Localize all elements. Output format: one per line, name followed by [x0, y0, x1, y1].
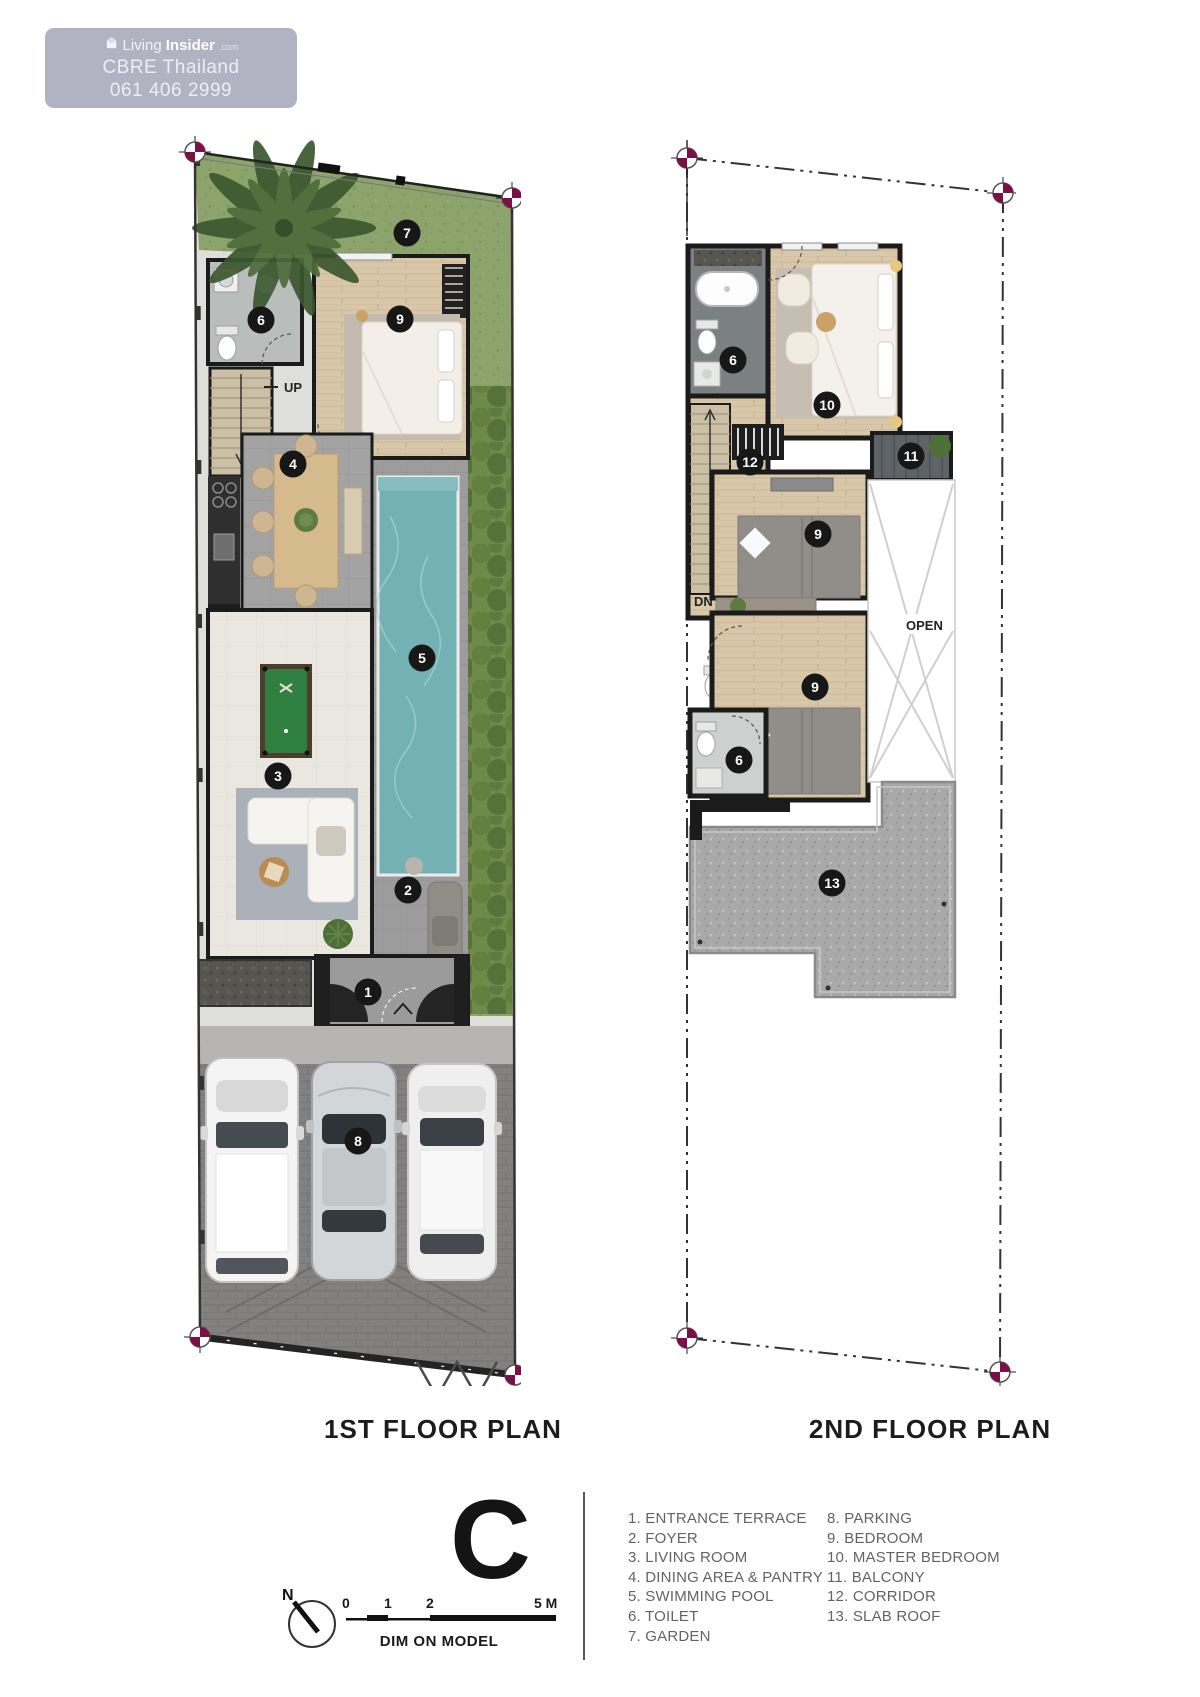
badge-bedroom-f1: 9: [387, 306, 414, 333]
scale-segment-thick: [367, 1615, 388, 1621]
car-hood: [418, 1086, 486, 1112]
entrance-wall: [316, 956, 330, 1026]
dining-area: [242, 434, 372, 610]
pool-table: [260, 664, 312, 758]
svg-text:4: 4: [289, 456, 297, 472]
kitchen-sink: [214, 534, 234, 560]
pillow: [878, 274, 893, 330]
watermark-company: CBRE Thailand: [102, 56, 239, 79]
parapet-wall: [690, 800, 702, 840]
legend-item: 5. SWIMMING POOL: [628, 1587, 823, 1607]
scale-segment-thin: [346, 1618, 367, 1621]
badge-bath-low: 6: [726, 747, 753, 774]
entrance-terrace: [316, 956, 468, 1026]
legend-item: 1. ENTRANCE TERRACE: [628, 1509, 823, 1529]
open-label: OPEN: [906, 618, 943, 633]
toilet-bowl: [697, 732, 715, 756]
pillow: [438, 330, 454, 372]
dining-chair: [295, 585, 317, 607]
badge-bath-top: 6: [720, 347, 747, 374]
svg-text:9: 9: [811, 679, 819, 695]
car-rear-window: [420, 1234, 484, 1254]
car-mirror: [296, 1126, 304, 1140]
car-mirror: [394, 1120, 402, 1133]
legend-item: 13. SLAB ROOF: [827, 1607, 1000, 1627]
window: [838, 243, 878, 250]
first-floor-plan-drawing: UP: [166, 136, 521, 1386]
badge-master-bedroom: 10: [814, 392, 841, 419]
legend-item: 4. DINING AREA & PANTRY: [628, 1568, 823, 1588]
table-plant-inner: [299, 513, 313, 527]
legend-column-1: 1. ENTRANCE TERRACE 2. FOYER 3. LIVING R…: [628, 1509, 823, 1646]
car-windshield: [216, 1122, 288, 1148]
tub-drain: [724, 286, 730, 292]
living-insider-logo-icon: [104, 35, 119, 50]
toilet-tank: [696, 320, 718, 329]
badge-living: 3: [265, 763, 292, 790]
toilet-bowl: [698, 330, 716, 354]
roof-drain: [942, 902, 947, 907]
legend-item: 3. LIVING ROOM: [628, 1548, 823, 1568]
svg-text:6: 6: [257, 312, 265, 328]
car-rear-window: [322, 1210, 386, 1232]
side-pouf: [405, 857, 423, 875]
sofa-cushion: [316, 826, 346, 856]
svg-text:6: 6: [735, 752, 743, 768]
svg-text:9: 9: [396, 311, 404, 327]
svg-text:7: 7: [403, 225, 411, 241]
svg-text:2: 2: [404, 882, 412, 898]
pouf-table: [816, 312, 836, 332]
watermark-logo-row: LivingInsider.com: [104, 35, 239, 56]
pillow: [438, 380, 454, 422]
fence-post: [395, 175, 405, 185]
svg-text:1: 1: [364, 984, 372, 1000]
lounge-chair-seat: [432, 916, 458, 946]
armchair: [786, 332, 818, 364]
compass-needle: [294, 1602, 318, 1632]
svg-text:8: 8: [354, 1133, 362, 1149]
dining-chair: [252, 555, 274, 577]
roof-drain: [698, 940, 703, 945]
svg-text:6: 6: [729, 352, 737, 368]
svg-text:9: 9: [814, 526, 822, 542]
survey-marker: [671, 1322, 703, 1354]
car-mirror: [306, 1120, 314, 1133]
car-mirror: [200, 1126, 208, 1140]
scale-segment-thin: [388, 1618, 430, 1621]
scale-tick-2: 2: [426, 1595, 434, 1611]
badge-pool: 5: [409, 645, 436, 672]
badge-garden: 7: [394, 220, 421, 247]
legend-item: 11. BALCONY: [827, 1568, 1000, 1588]
toilet-tank: [216, 326, 238, 335]
nightstand: [356, 310, 368, 322]
scale-tick-5m: 5 M: [534, 1595, 557, 1611]
bedroom-front: [712, 472, 868, 598]
legend-item: 10. MASTER BEDROOM: [827, 1548, 1000, 1568]
car-rear-window: [216, 1258, 288, 1274]
legend-column-2: 8. PARKING 9. BEDROOM 10. MASTER BEDROOM…: [827, 1509, 1000, 1627]
roof-drain: [826, 986, 831, 991]
svg-text:10: 10: [819, 397, 835, 413]
north-label: N: [282, 1587, 294, 1604]
second-floor-plan-drawing: DN: [606, 136, 1016, 1386]
second-floor-title: 2ND FLOOR PLAN: [780, 1414, 1080, 1445]
car-suv: [200, 1058, 304, 1282]
svg-text:13: 13: [824, 875, 840, 891]
survey-marker: [671, 142, 703, 174]
badge-dining: 4: [280, 451, 307, 478]
gravel-patio: [199, 960, 311, 1006]
watermark-brand-bold: Insider: [166, 37, 215, 54]
armchair: [778, 274, 810, 306]
car-mirror: [494, 1122, 502, 1135]
plant-fronds: [326, 922, 350, 946]
parapet-wall: [690, 800, 790, 812]
car-hood: [216, 1080, 288, 1112]
swimming-pool: [377, 477, 458, 875]
bedroom-f1: [314, 253, 468, 458]
scale-bar: 0 1 2 5 M DIM ON MODEL: [338, 1592, 566, 1656]
bedside-lamp: [890, 260, 902, 272]
living-room: [208, 610, 372, 958]
badge-foyer: 2: [395, 877, 422, 904]
survey-marker: [984, 1356, 1016, 1386]
north-compass: N: [272, 1582, 348, 1658]
legend-item: 12. CORRIDOR: [827, 1587, 1000, 1607]
dining-chair: [252, 467, 274, 489]
legend-divider: [583, 1492, 585, 1660]
scale-note: DIM ON MODEL: [380, 1633, 499, 1650]
badge-entrance: 1: [355, 979, 382, 1006]
pillow: [878, 342, 893, 398]
badge-corridor: 12: [737, 449, 764, 476]
vanity-sink: [696, 768, 722, 788]
legend-item: 9. BEDROOM: [827, 1529, 1000, 1549]
desk: [771, 478, 833, 491]
sink-basin: [702, 369, 712, 379]
balcony-plant: [929, 435, 951, 457]
bedside-lamp: [890, 416, 902, 428]
wardrobe: [442, 264, 466, 318]
scale-tick-0: 0: [342, 1595, 350, 1611]
plan-type-letter: C: [450, 1492, 531, 1587]
stairs-up-label: UP: [284, 380, 302, 395]
svg-text:12: 12: [742, 454, 758, 470]
window: [336, 253, 392, 260]
survey-marker: [987, 177, 1016, 209]
scale-tick-1: 1: [384, 1595, 392, 1611]
pebble-strip: [694, 250, 762, 266]
badge-toilet-f1: 6: [248, 307, 275, 334]
pool-steps: [378, 477, 458, 491]
entrance-wall: [454, 956, 468, 1026]
badge-balcony: 11: [898, 443, 925, 470]
badge-bedroom-front: 9: [805, 521, 832, 548]
legend-item: 8. PARKING: [827, 1509, 1000, 1529]
car-sports: [306, 1062, 402, 1280]
dining-chair: [252, 511, 274, 533]
toilet-tank: [696, 722, 716, 731]
watermark-brand-prefix: Living: [123, 37, 162, 54]
legend-item: 2. FOYER: [628, 1529, 823, 1549]
legend-item: 7. GARDEN: [628, 1627, 823, 1647]
badge-slab-roof: 13: [819, 870, 846, 897]
svg-text:11: 11: [904, 448, 919, 464]
car-windshield: [420, 1118, 484, 1146]
svg-text:3: 3: [274, 768, 282, 784]
car-roof: [420, 1150, 484, 1230]
badge-parking: 8: [345, 1128, 372, 1155]
floorplan-sheet: LivingInsider.com CBRE Thailand 061 406 …: [0, 0, 1200, 1697]
legend-item: 6. TOILET: [628, 1607, 823, 1627]
badge-bedroom-mid: 9: [802, 674, 829, 701]
car-roof: [322, 1148, 386, 1206]
scale-segment-thick: [430, 1615, 556, 1621]
car-roof: [216, 1154, 288, 1252]
bathroom-top: [688, 246, 768, 396]
first-floor-title: 1ST FLOOR PLAN: [293, 1414, 593, 1445]
svg-text:5: 5: [418, 650, 426, 666]
car-mirror: [402, 1122, 410, 1135]
toilet-bowl: [218, 336, 236, 360]
watermark-badge: LivingInsider.com CBRE Thailand 061 406 …: [45, 28, 297, 108]
dining-bench: [344, 488, 362, 554]
watermark-phone: 061 406 2999: [110, 79, 232, 102]
car-sedan: [402, 1064, 502, 1280]
watermark-brand-suffix: .com: [219, 39, 239, 56]
